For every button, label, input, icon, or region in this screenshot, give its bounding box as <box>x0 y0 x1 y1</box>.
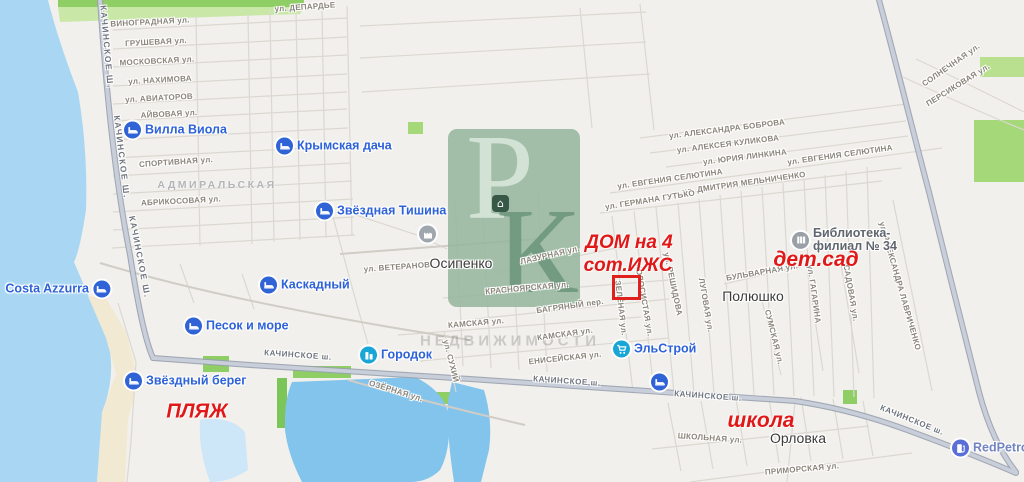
bed-icon[interactable] <box>124 122 141 139</box>
poi-zvezdny-bereg[interactable]: Звёздный берег <box>125 373 246 390</box>
bed-icon[interactable] <box>260 277 277 294</box>
poi-krymskaya-dacha[interactable]: Крымская дача <box>276 138 392 155</box>
poi-zvezdnaya-tishina[interactable]: Звёздная Тишина <box>316 203 446 220</box>
bed-icon[interactable] <box>276 138 293 155</box>
watermark-text: НЕДВИЖИМОСТИ <box>420 333 600 350</box>
poi-kaskadny[interactable]: Каскадный <box>260 277 350 294</box>
bed-icon[interactable] <box>651 374 668 391</box>
poi-elstroy[interactable]: ЭльСтрой <box>613 341 696 358</box>
poi-label[interactable]: Вилла Виола <box>145 123 227 136</box>
poi-pesok-i-more[interactable]: Песок и море <box>185 318 289 335</box>
poi-label[interactable]: ЭльСтрой <box>634 342 696 355</box>
poi-factory[interactable] <box>419 226 436 243</box>
building-icon[interactable] <box>360 347 377 364</box>
poi-label[interactable]: Крымская дача <box>297 139 392 152</box>
bed-icon[interactable] <box>316 203 333 220</box>
poi-costa-azzurra[interactable]: Costa Azzurra <box>5 281 110 298</box>
bed-icon[interactable] <box>93 281 110 298</box>
factory-icon[interactable] <box>419 226 436 243</box>
poi-label[interactable]: Библиотека-филиал № 34 <box>813 227 897 253</box>
fuel-icon[interactable] <box>952 440 969 457</box>
cart-icon[interactable] <box>613 341 630 358</box>
poi-gorodok[interactable]: Городок <box>360 347 432 364</box>
poi-villa-viola[interactable]: Вилла Виола <box>124 122 227 139</box>
poi-label[interactable]: Звёздная Тишина <box>337 204 446 217</box>
poi-label[interactable]: Городок <box>381 348 432 361</box>
poi-label[interactable]: Звёздный берег <box>146 374 246 387</box>
poi-label[interactable]: RedPetrol <box>973 441 1024 454</box>
poi-redpetrol[interactable]: RedPetrol <box>952 440 1024 457</box>
bed-icon[interactable] <box>185 318 202 335</box>
poi-label[interactable]: Песок и море <box>206 319 289 332</box>
watermark-logo: Р К ⌂ <box>448 129 580 307</box>
poi-biblioteka-filial-34[interactable]: Библиотека-филиал № 34 <box>792 227 897 253</box>
map-canvas[interactable]: Р К ⌂ НЕДВИЖИМОСТИ ул. ДЕПАРДЬЕВИНОГРАДН… <box>0 0 1024 482</box>
house-icon: ⌂ <box>492 195 509 212</box>
poi-hotel-unlabeled[interactable] <box>651 374 668 391</box>
library-icon[interactable] <box>792 232 809 249</box>
bed-icon[interactable] <box>125 373 142 390</box>
target-plot-marker <box>612 275 641 300</box>
poi-label[interactable]: Costa Azzurra <box>5 282 89 295</box>
poi-label[interactable]: Каскадный <box>281 278 350 291</box>
